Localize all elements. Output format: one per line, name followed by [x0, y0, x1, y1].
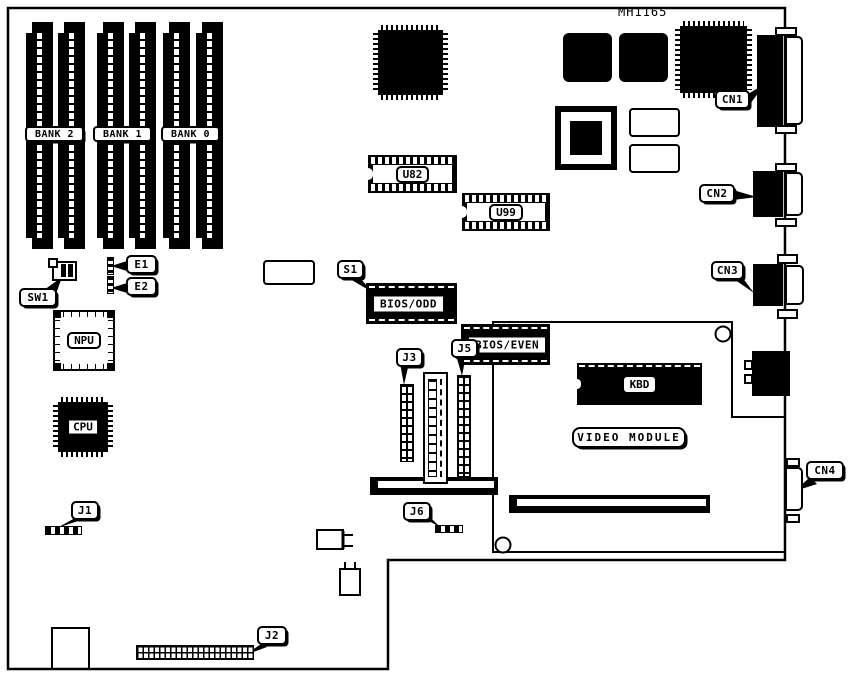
din-connector: [752, 351, 790, 396]
board-keying-notch: [52, 628, 89, 669]
ic-chip: [563, 33, 612, 82]
pin-row: [443, 33, 448, 92]
socket-corner: [107, 363, 114, 370]
label-bank-2: BANK 2: [25, 126, 84, 142]
connector-body: [757, 35, 783, 127]
pin-row: [465, 195, 547, 202]
label-bank-1: BANK 1: [93, 126, 152, 142]
socket-dash: [579, 365, 700, 367]
header-j3: [400, 384, 414, 462]
mounting-hole: [496, 538, 511, 553]
dip-chip-u99: U99: [462, 193, 550, 231]
label-cn2: CN2: [699, 184, 735, 203]
label-cpu: CPU: [69, 421, 97, 434]
label-j6: J6: [403, 502, 431, 521]
socket-dash: [369, 286, 454, 288]
pin-row: [683, 21, 744, 26]
slot-end-cap: [64, 22, 85, 33]
label-s1: S1: [337, 260, 364, 279]
label-npu: NPU: [67, 332, 101, 349]
socket-corner: [54, 311, 61, 318]
socket-dash: [464, 327, 547, 329]
socket-dash: [369, 319, 454, 321]
oscillator-can: [629, 144, 680, 173]
label-kbd: KBD: [624, 377, 656, 392]
slot-end-cap: [64, 238, 85, 249]
connector-cells: [428, 379, 437, 477]
label-u82: U82: [396, 166, 430, 183]
pin-row: [465, 222, 547, 229]
pin1-notch: [577, 379, 581, 389]
motherboard-diagram: MH1165 BANK 2 BANK 1 BANK 0 U82 U99: [0, 0, 848, 677]
s1-slot-right: [509, 495, 710, 513]
pin-row: [371, 184, 454, 191]
label-bank-0: BANK 0: [161, 126, 220, 142]
socket-ring: [561, 112, 611, 164]
slot-end-cap: [135, 22, 156, 33]
qfp-chip: [680, 26, 747, 93]
vertical-connector: [423, 372, 448, 484]
dsub-shell: [785, 467, 803, 511]
pin-row: [747, 29, 752, 90]
label-j1: J1: [71, 501, 99, 520]
label-sw1: SW1: [19, 288, 57, 307]
connector-prong: [744, 360, 753, 370]
kbd-chip: KBD: [577, 363, 702, 405]
label-cn4: CN4: [806, 461, 844, 480]
dsub-shell: [785, 172, 803, 216]
label-video-module: VIDEO MODULE: [572, 427, 686, 448]
dip-chip-u82: U82: [368, 155, 457, 193]
label-e1: E1: [126, 255, 157, 274]
connector-body: [753, 264, 783, 306]
header-j5: [457, 375, 471, 477]
pin-row: [381, 25, 440, 30]
connector-screw-tab: [786, 514, 800, 523]
pin-row: [61, 452, 105, 457]
pin-row: [61, 397, 105, 402]
slot-end-cap: [103, 238, 124, 249]
socket-chip: [570, 121, 602, 155]
socket-dash: [464, 360, 547, 362]
slot-end-cap: [135, 238, 156, 249]
label-cn3: CN3: [711, 261, 744, 280]
pin-row: [675, 29, 680, 90]
mounting-hole: [716, 327, 731, 342]
switch-position: [68, 264, 73, 277]
socket-corner: [107, 311, 114, 318]
label-j5: J5: [451, 339, 478, 358]
slot-end-cap: [202, 22, 223, 33]
oscillator-can: [263, 260, 315, 285]
connector-screw-tab: [775, 218, 797, 227]
bios-odd-chip: BIOS/ODD: [366, 283, 457, 324]
label-e2: E2: [126, 277, 157, 296]
connector-prong: [744, 374, 753, 384]
npu-socket: NPU: [53, 310, 115, 371]
label-bios-even: BIOS/EVEN: [469, 337, 545, 352]
part-number-text: MH1165: [618, 5, 667, 19]
cn3-connector: [753, 254, 805, 320]
jumper-j1: [45, 526, 82, 535]
socket-corner: [54, 363, 61, 370]
connector-dash-line: [440, 379, 442, 477]
connector-screw-tab: [775, 125, 797, 134]
header-j2: [136, 645, 254, 660]
chip-body: U82: [373, 165, 452, 183]
connector-body: [753, 171, 783, 217]
slot-end-cap: [169, 22, 190, 33]
cn4-connector: [785, 458, 805, 524]
pin-row: [53, 405, 58, 449]
chip-body: U99: [467, 203, 545, 221]
sw1-switch: [48, 258, 79, 282]
slot-end-cap: [32, 22, 53, 33]
pin-row: [381, 95, 440, 100]
label-cn1: CN1: [715, 90, 750, 109]
slot-end-cap: [103, 22, 124, 33]
pin-row: [371, 157, 454, 164]
switch-tab: [48, 258, 58, 268]
cn1-connector: [755, 27, 805, 134]
ic-chip: [619, 33, 668, 82]
plcc-socket: [555, 106, 617, 170]
capacitor: [340, 562, 360, 595]
dsub-shell: [785, 36, 803, 125]
label-j3: J3: [396, 348, 423, 367]
cn2-connector: [753, 163, 805, 227]
jumper-e2: [107, 276, 114, 294]
slot-end-cap: [202, 238, 223, 249]
slot-end-cap: [32, 238, 53, 249]
jumper-e1: [107, 257, 114, 275]
switch-position: [61, 264, 66, 277]
label-j2: J2: [257, 626, 287, 645]
pin-row: [108, 405, 113, 449]
label-bios-odd: BIOS/ODD: [374, 296, 443, 311]
connector-screw-tab: [786, 458, 800, 467]
cpu-chip: CPU: [58, 402, 108, 452]
crystal-oscillator: [317, 530, 353, 549]
slot-end-cap: [169, 238, 190, 249]
oscillator-can: [629, 108, 680, 137]
dsub-shell: [785, 265, 804, 305]
pin-row: [373, 33, 378, 92]
label-u99: U99: [489, 204, 523, 221]
jumper-j6: [435, 525, 463, 533]
connector-screw-tab: [777, 254, 798, 264]
qfp-chip: [378, 30, 443, 95]
connector-screw-tab: [777, 309, 798, 319]
